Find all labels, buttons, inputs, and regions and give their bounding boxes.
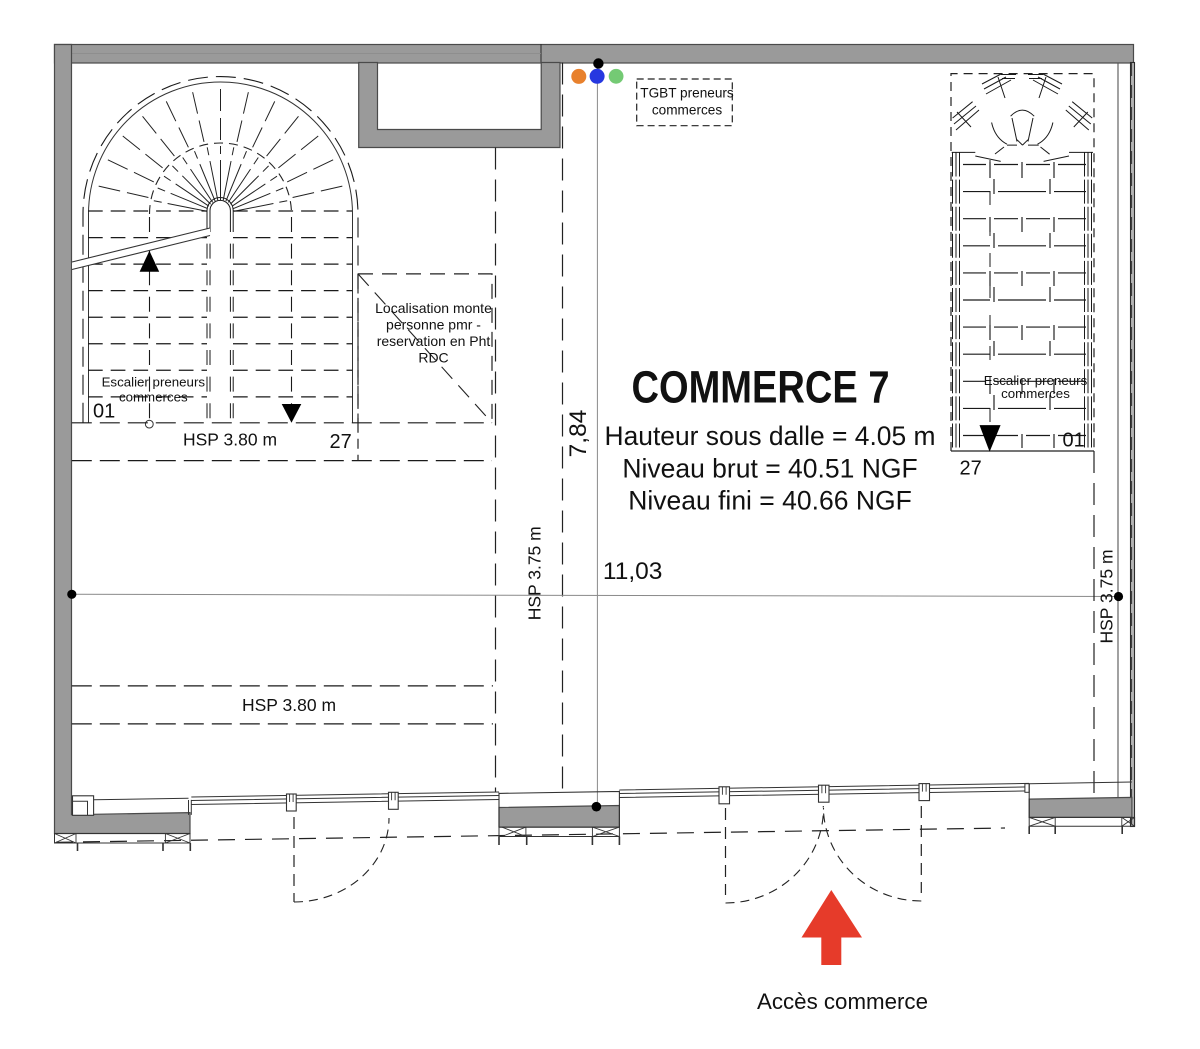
svg-text:TGBT preneurs: TGBT preneurs xyxy=(640,86,734,101)
svg-text:RDC: RDC xyxy=(418,350,448,366)
svg-text:HSP 3.75 m: HSP 3.75 m xyxy=(525,526,545,620)
svg-text:HSP 3.80 m: HSP 3.80 m xyxy=(242,695,336,715)
svg-text:Localisation monte: Localisation monte xyxy=(375,300,492,316)
svg-text:11,03: 11,03 xyxy=(603,558,663,585)
svg-text:HSP 3.80 m: HSP 3.80 m xyxy=(183,430,277,450)
svg-text:COMMERCE 7: COMMERCE 7 xyxy=(632,362,890,413)
svg-text:commerces: commerces xyxy=(652,102,722,117)
svg-text:commerces: commerces xyxy=(1001,386,1070,401)
svg-text:reservation en Pht: reservation en Pht xyxy=(377,333,491,349)
svg-text:01: 01 xyxy=(93,401,115,423)
svg-text:Escalier preneurs: Escalier preneurs xyxy=(102,375,206,390)
svg-text:27: 27 xyxy=(330,431,352,453)
svg-text:Niveau fini = 40.66 NGF: Niveau fini = 40.66 NGF xyxy=(628,486,912,516)
svg-text:27: 27 xyxy=(960,458,982,480)
svg-text:commerces: commerces xyxy=(119,389,188,404)
svg-text:01: 01 xyxy=(1063,430,1085,452)
svg-text:Niveau brut = 40.51 NGF: Niveau brut = 40.51 NGF xyxy=(622,454,917,484)
svg-text:7,84: 7,84 xyxy=(565,410,592,458)
svg-text:HSP 3.75 m: HSP 3.75 m xyxy=(1097,549,1117,643)
svg-text:Accès commerce: Accès commerce xyxy=(757,989,928,1014)
svg-text:personne pmr -: personne pmr - xyxy=(386,317,481,333)
svg-text:Hauteur sous dalle = 4.05 m: Hauteur sous dalle = 4.05 m xyxy=(605,421,936,451)
